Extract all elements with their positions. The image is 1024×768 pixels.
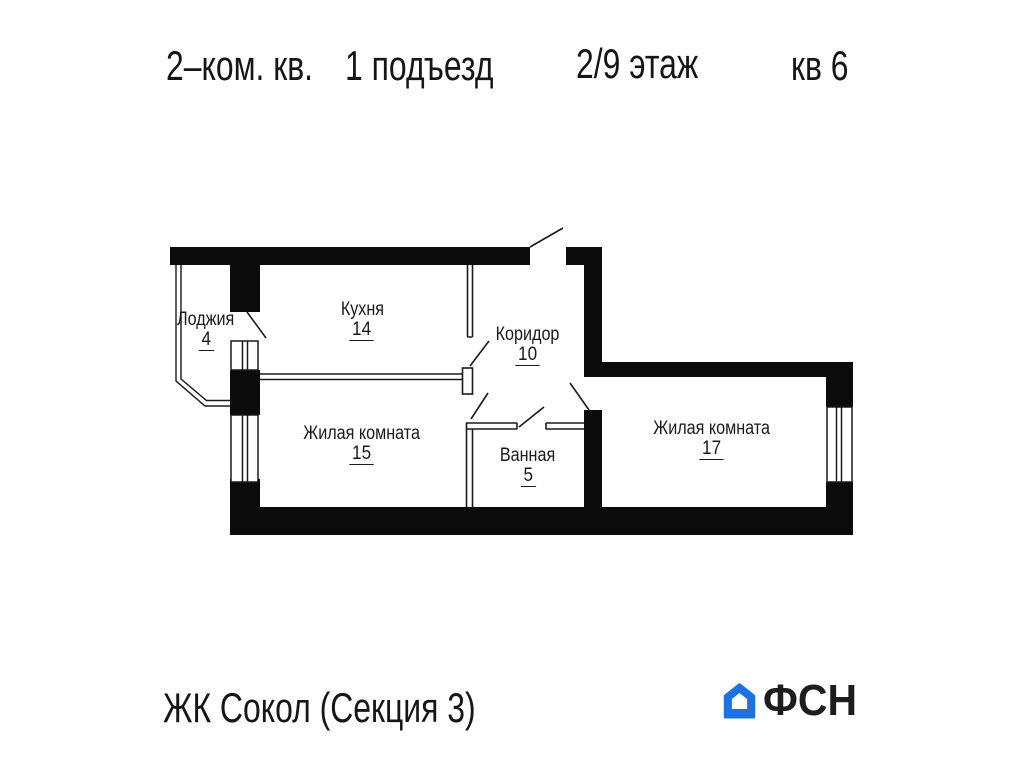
wall-left-pier-low [230, 479, 260, 509]
room-area: 17 [700, 439, 724, 460]
bathroom-door-leaf [519, 407, 544, 427]
room-label-corridor: Коридор 10 [428, 325, 628, 366]
room-name: Жилая комната [654, 419, 771, 439]
room-area: 10 [516, 345, 540, 366]
wall-left-pier-top [230, 262, 260, 312]
complex-name-label: ЖК Сокол (Секция 3) [163, 686, 476, 730]
entrance-door-leaf [530, 228, 563, 247]
living-room-1-window [231, 415, 258, 482]
living-room-2-window [827, 407, 852, 482]
living1-door-leaf [471, 393, 488, 419]
room-area: 4 [199, 330, 214, 351]
room-label-bathroom: Ванная 5 [428, 446, 628, 487]
brand-text: ФСН [763, 682, 857, 720]
wall-left-pier-mid [230, 370, 260, 415]
room-name: Кухня [340, 300, 383, 320]
door-jamb-post [463, 368, 473, 394]
partition-kitchen-living1 [260, 374, 462, 380]
wall-top-left [170, 247, 530, 265]
developer-logo: ФСН [721, 682, 864, 720]
wall-bottom [230, 507, 853, 535]
room-area: 15 [350, 444, 374, 465]
room-label-living-room-2: Жилая комната 17 [612, 419, 812, 460]
room-area: 14 [350, 320, 374, 341]
room-area: 5 [521, 466, 536, 487]
room-name: Лоджия [177, 310, 234, 330]
living2-door-leaf [570, 383, 589, 410]
floor-plan-drawing [0, 0, 1024, 768]
partition-bath-top-left [466, 423, 517, 429]
partition-bath-top-right [546, 423, 584, 429]
room-name: Жилая комната [304, 424, 421, 444]
thick-walls [170, 247, 853, 535]
floorplan-sheet: 2–ком. кв. 1 подъезд 2/9 этаж кв 6 [0, 0, 1024, 768]
fsn-house-logo-icon [721, 682, 758, 720]
wall-right-upper [826, 362, 853, 407]
room-name: Коридор [496, 325, 560, 345]
room-name: Ванная [500, 446, 555, 466]
